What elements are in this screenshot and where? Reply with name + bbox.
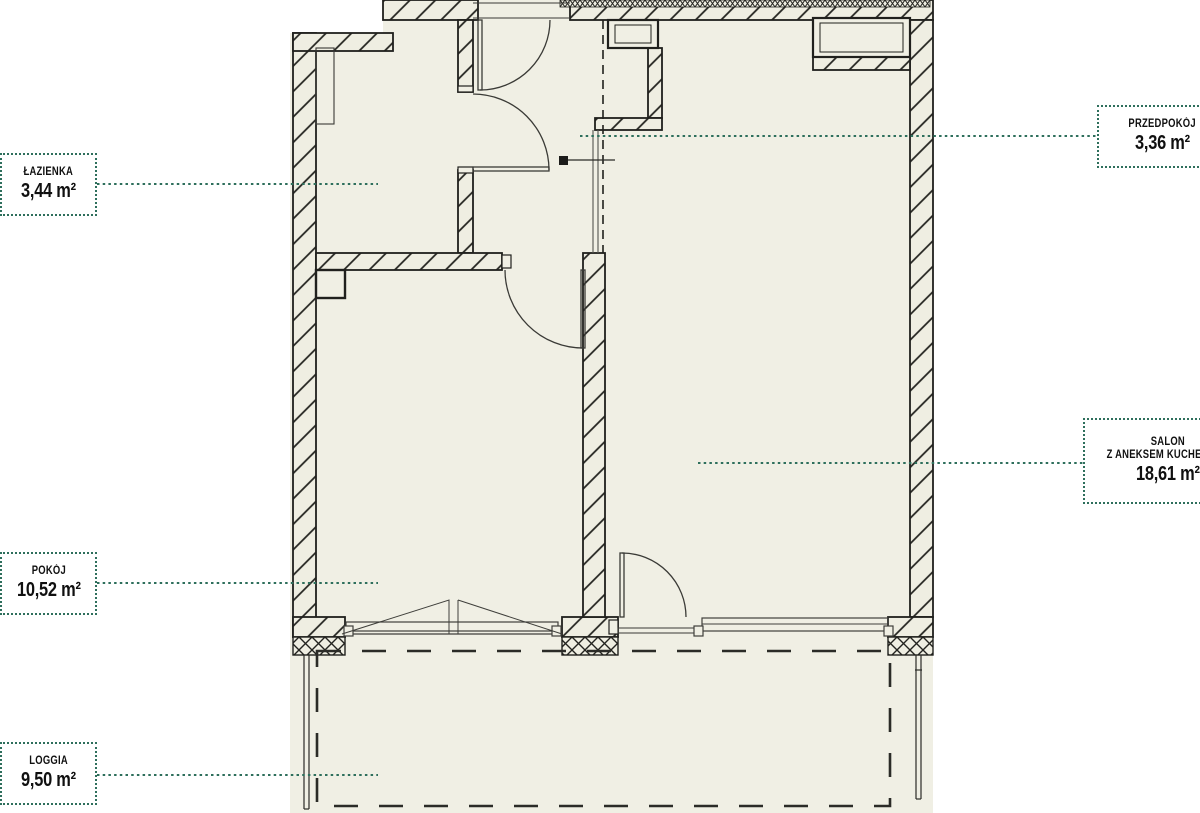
- room-name: POKÓJ: [31, 565, 65, 578]
- room-subname: Z ANEKSEM KUCHENNYM: [1106, 449, 1200, 462]
- room-label-lazienka: ŁAZIENKA 3,44 m²: [0, 153, 97, 216]
- wall-niche: [813, 18, 910, 57]
- room-label-loggia: LOGGIA 9,50 m²: [0, 742, 97, 805]
- room-area: 3,44 m²: [21, 180, 76, 203]
- room-area: 10,52 m²: [17, 579, 81, 602]
- room-label-pokoj: POKÓJ 10,52 m²: [0, 552, 97, 615]
- room-label-przedpokoj: PRZEDPOKÓJ 3,36 m²: [1097, 105, 1200, 168]
- room-area: 9,50 m²: [21, 769, 76, 792]
- ventilation-shaft: [608, 20, 658, 48]
- floor-plan-drawing: [0, 0, 1200, 813]
- room-name: SALON: [1151, 436, 1185, 449]
- top-wall-fine-hatch-strip: [560, 0, 930, 7]
- floor-plan-page: ŁAZIENKA 3,44 m² PRZEDPOKÓJ 3,36 m² SALO…: [0, 0, 1200, 813]
- room-area: 18,61 m²: [1136, 463, 1200, 486]
- room-label-salon: SALON Z ANEKSEM KUCHENNYM 18,61 m²: [1083, 418, 1200, 504]
- room-name: LOGGIA: [29, 755, 68, 768]
- room-area: 3,36 m²: [1135, 132, 1190, 155]
- duct-block: [316, 270, 345, 298]
- room-name: PRZEDPOKÓJ: [1128, 118, 1195, 131]
- room-name: ŁAZIENKA: [24, 166, 74, 179]
